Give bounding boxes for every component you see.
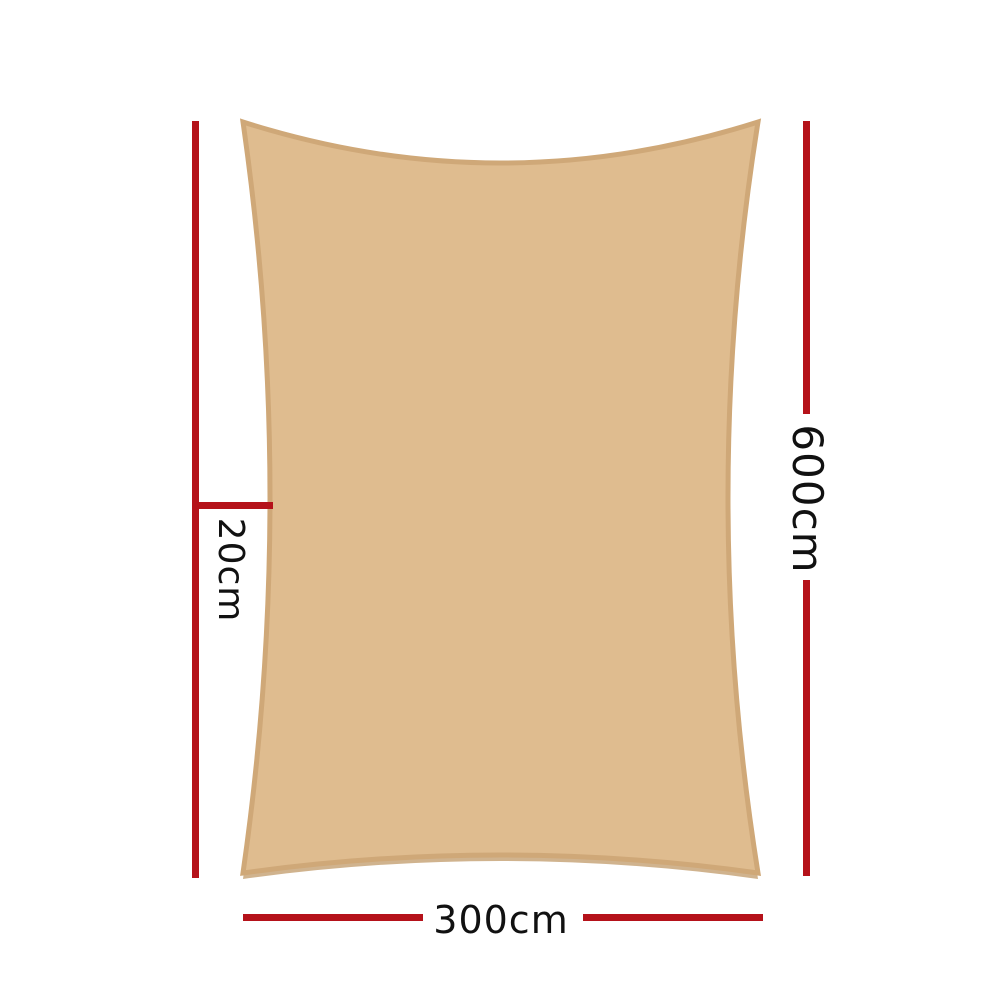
shade-sail-shape xyxy=(243,122,758,873)
height-dimension-line-top-segment xyxy=(803,121,810,414)
diagram-canvas: 600cm 300cm 20cm xyxy=(0,0,1000,1000)
width-dimension-label: 300cm xyxy=(433,901,568,939)
offset-tick-line xyxy=(192,502,273,509)
width-dimension-line-left-segment xyxy=(243,914,423,921)
offset-dimension-label: 20cm xyxy=(212,518,248,623)
left-reference-line xyxy=(192,121,199,878)
height-dimension-line-bottom-segment xyxy=(803,580,810,876)
width-dimension-line-right-segment xyxy=(583,914,763,921)
shade-sail-svg xyxy=(0,0,1000,1000)
height-dimension-label: 600cm xyxy=(786,424,828,573)
